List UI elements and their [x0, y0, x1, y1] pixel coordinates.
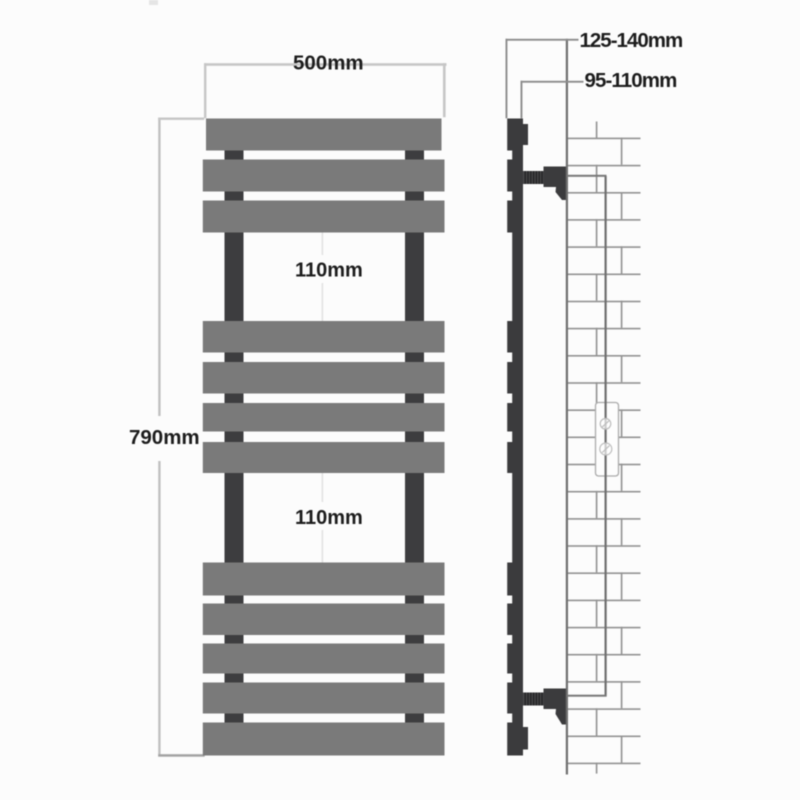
svg-text:500mm: 500mm [293, 52, 364, 75]
svg-text:110mm: 110mm [295, 260, 363, 282]
svg-text:790mm: 790mm [129, 426, 200, 449]
svg-text:95-110mm: 95-110mm [585, 69, 677, 92]
svg-text:110mm: 110mm [295, 507, 363, 529]
svg-text:125-140mm: 125-140mm [580, 29, 683, 52]
